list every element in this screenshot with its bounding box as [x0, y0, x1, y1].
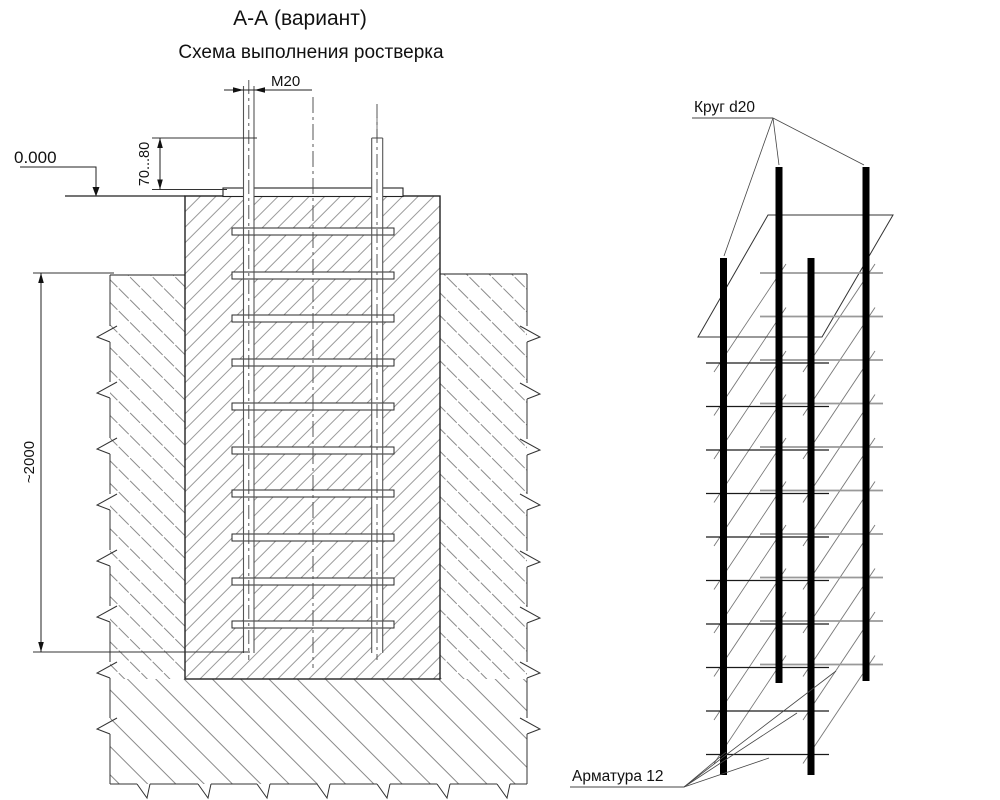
section-view: 0.000 M20 70...80 ~2000: [14, 73, 540, 798]
cage-bolt-front-left: [720, 258, 727, 775]
leader-line: [773, 118, 779, 165]
protrusion-value: 70...80: [137, 142, 153, 186]
leader-line: [773, 118, 864, 165]
drawing-canvas: А-А (вариант) Схема выполнения ростверка: [0, 0, 1000, 800]
cage-bolt-back-right: [863, 167, 870, 681]
dimension-m20: M20: [224, 73, 312, 93]
rod-label: Круг d20: [694, 99, 755, 116]
soil-backfill-left: [110, 275, 185, 679]
cage-view: Круг d20 Арматура 12: [570, 99, 893, 787]
soil-below-pier: [110, 679, 527, 784]
depth-value: ~2000: [21, 441, 38, 483]
elevation-value: 0.000: [14, 148, 57, 167]
break-spike-bottom: [137, 784, 510, 798]
rebar-label: Арматура 12: [572, 768, 664, 785]
leader-line: [724, 118, 773, 256]
rebar-callout: Арматура 12: [570, 671, 836, 787]
soil-backfill-right: [440, 274, 527, 679]
section-title: А-А (вариант): [233, 7, 367, 30]
dimension-protrusion: 70...80: [137, 138, 257, 190]
cage-bolt-front-right: [808, 258, 815, 775]
cage-side-rungs: [714, 264, 875, 764]
drawing-sheet: А-А (вариант) Схема выполнения ростверка: [0, 0, 1000, 800]
cage-bolt-back-left: [776, 167, 783, 683]
soil-bottom-edge: [110, 784, 527, 798]
elevation-mark: 0.000: [14, 148, 100, 197]
concrete-pier: [185, 196, 440, 679]
bolt-thread-label: M20: [271, 73, 300, 90]
elevation-arrow: [93, 187, 100, 197]
scheme-title: Схема выполнения ростверка: [178, 42, 444, 63]
